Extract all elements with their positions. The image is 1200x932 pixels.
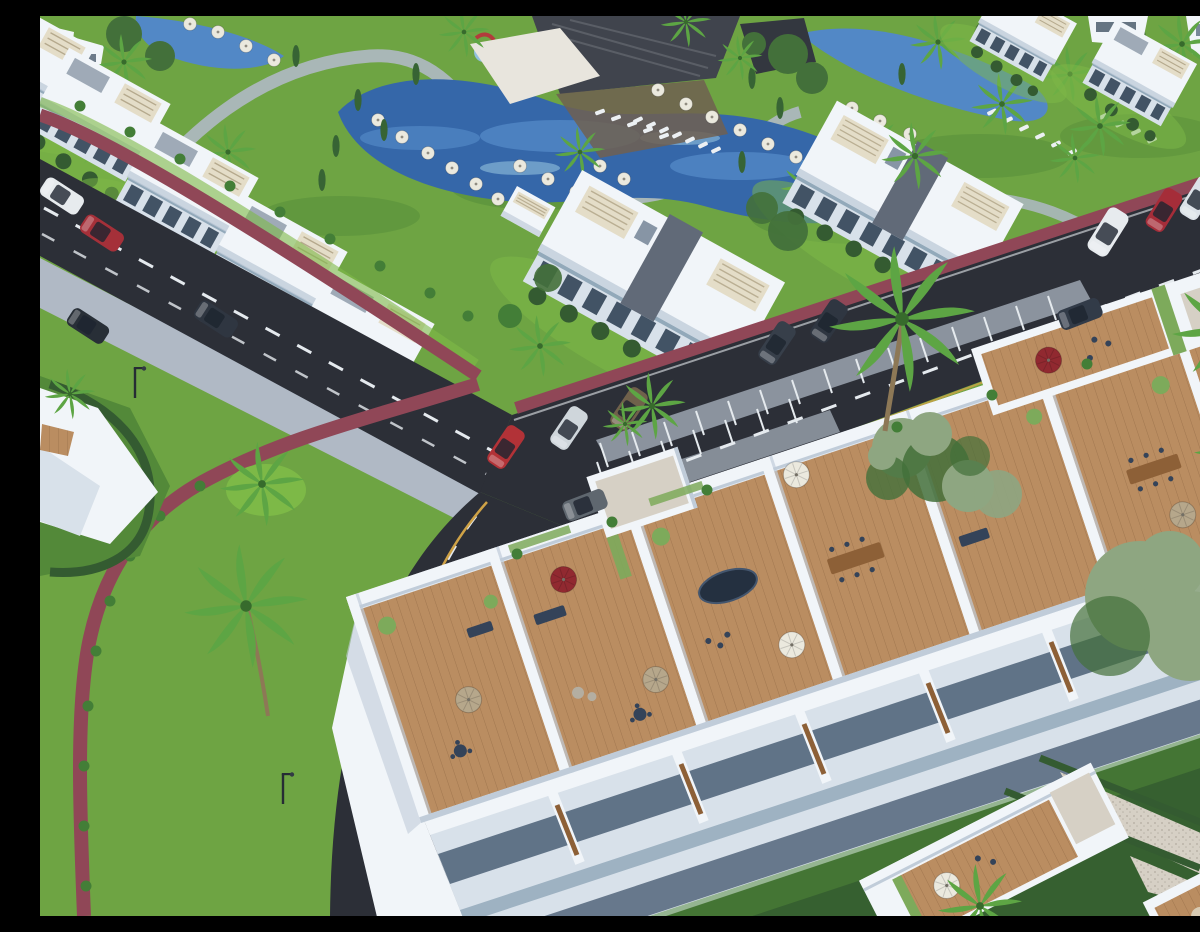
aerial-resort-render [40,16,1200,916]
light-haze-overlay [40,16,1200,916]
scene-canvas [40,16,1200,916]
